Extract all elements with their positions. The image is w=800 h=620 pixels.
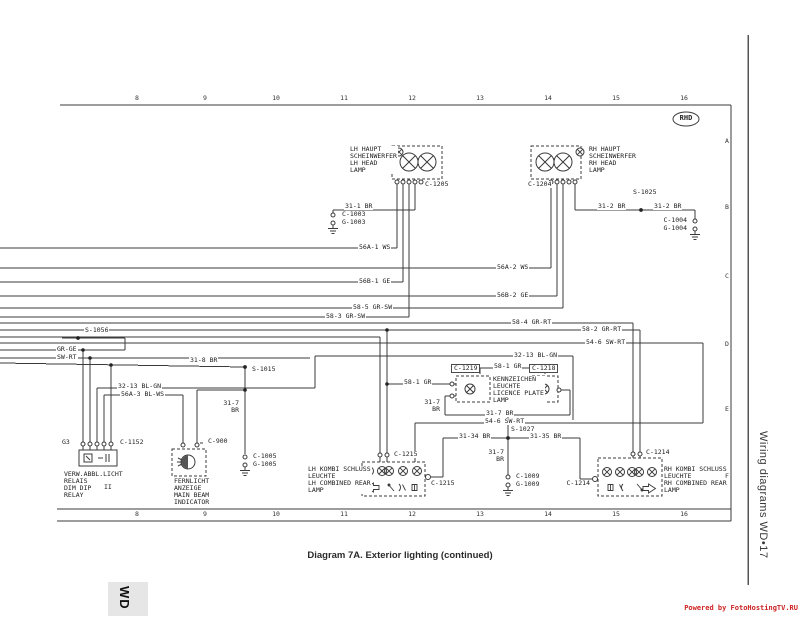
watermark: Powered by FotoHostingTV.RU <box>684 604 798 612</box>
wire-31-7-br-a: 31-7 BR <box>222 400 240 414</box>
licence-lamp-left-outline <box>456 376 490 402</box>
rear-lamp-icons <box>367 483 656 493</box>
relay-symbol: II <box>103 484 113 491</box>
ruler-top-8: 8 <box>134 95 140 102</box>
connector-c1205: C-1205 <box>424 181 449 188</box>
rh-turn-arrow-icon <box>643 484 656 493</box>
ruler-top-13: 13 <box>475 95 485 102</box>
ruler-letter-D: D <box>724 341 730 348</box>
ruler-bottom-11: 11 <box>339 511 349 518</box>
wire-gr-ge: GR-GE <box>56 346 78 353</box>
main-beam-indicator-symbol <box>177 455 195 469</box>
rh-reverse-icon <box>608 485 613 491</box>
wire-54-6-sw-rt-a: 54-6 SW-RT <box>585 339 626 346</box>
sidebar-title: Wiring diagrams WD•17 <box>757 431 769 558</box>
ground-g1005: G-1005 <box>252 461 277 468</box>
wire-58-2-gr-rt: 58-2 GR-RT <box>581 326 622 333</box>
wire-58-5-gr-sw: 58-5 GR-SW <box>352 304 393 311</box>
wire-31-7-br-b: 31-7 BR <box>423 399 441 413</box>
relay-label: VERW.ABBL.LICHT RELAIS DIM DIP RELAY <box>63 471 124 499</box>
rh-headlamp-label: RH HAUPT SCHEINWERFER RH HEAD LAMP <box>588 146 637 174</box>
ruler-top-16: 16 <box>679 95 689 102</box>
rh-tail-icon <box>620 484 624 491</box>
ruler-bottom-8: 8 <box>134 511 140 518</box>
lh-rear-lamp-label: LH KOMBI SCHLUSS LEUCHTE LH COMBINED REA… <box>307 466 372 494</box>
connector-pins <box>81 180 697 487</box>
connector-c1215-side: C-1215 <box>430 480 455 487</box>
page-border <box>57 35 748 585</box>
ruler-letter-C: C <box>724 273 730 280</box>
ruler-top-14: 14 <box>543 95 553 102</box>
wire-32-13-bl-gn-a: 32-13 BL-GN <box>513 352 558 359</box>
connector-c1219: C-1219 <box>451 364 480 373</box>
wire-58-1-gr-b: 58-1 GR <box>493 363 522 370</box>
splice-s1056: S-1056 <box>84 327 109 334</box>
ruler-top-10: 10 <box>271 95 281 102</box>
splice-s1025: S-1025 <box>632 189 657 196</box>
dim-dip-relay-box <box>79 450 117 466</box>
wire-31-8-br: 31-8 BR <box>189 357 218 364</box>
wiring-diagram-page: LH HAUPT SCHEINWERFER LH HEAD LAMPC-1205… <box>0 0 800 620</box>
connector-c1152: C-1152 <box>119 439 144 446</box>
wire-31-34-br: 31-34 BR <box>458 433 491 440</box>
ruler-letter-A: A <box>724 138 730 145</box>
connector-c1004: C-1004 <box>663 217 688 224</box>
wire-sw-rt: SW-RT <box>56 354 78 361</box>
splice-s1015: S-1015 <box>251 366 276 373</box>
ground-g1004: G-1004 <box>663 225 688 232</box>
ruler-letter-E: E <box>724 406 730 413</box>
ruler-bottom-14: 14 <box>543 511 553 518</box>
lh-tail-icon <box>399 484 406 491</box>
ground-g1003: G-1003 <box>341 219 366 226</box>
wire-31-7-br-d: 31-7 BR <box>487 449 505 463</box>
licence-plate-lamp-label: KENNZEICHEN LEUCHTE LICENCE PLATE LAMP <box>492 376 545 404</box>
lh-reverse-icon <box>412 485 417 491</box>
wire-31-35-br: 31-35 BR <box>529 433 562 440</box>
ruler-letter-F: F <box>724 473 730 480</box>
wire-54-6-sw-rt-b: 54-6 SW-RT <box>484 418 525 425</box>
wiring-diagram-canvas <box>0 0 800 620</box>
ruler-top-15: 15 <box>611 95 621 102</box>
ruler-top-11: 11 <box>339 95 349 102</box>
wire-58-4-gr-rt: 58-4 GR-RT <box>511 319 552 326</box>
connector-c900: C-900 <box>207 438 229 445</box>
ruler-letter-B: B <box>724 204 730 211</box>
connector-c1214-top: C-1214 <box>645 449 670 456</box>
ruler-bottom-15: 15 <box>611 511 621 518</box>
wire-56a-3-bl-ws: 56A-3 BL-WS <box>120 391 165 398</box>
wire-32-13-bl-gn-b: 32-13 BL-GN <box>117 383 162 390</box>
corner-tab: WD <box>108 582 148 616</box>
ruler-bottom-12: 12 <box>407 511 417 518</box>
wire-31-2-br-a: 31-2 BR <box>597 203 626 210</box>
ruler-bottom-10: 10 <box>271 511 281 518</box>
main-beam-indicator-label: FERNLICHT ANZEIGE MAIN BEAM INDICATOR <box>173 478 210 506</box>
wire-31-1-br: 31-1 BR <box>344 203 373 210</box>
wire-58-3-gr-sw: 58-3 GR-SW <box>325 313 366 320</box>
connector-c1218: C-1218 <box>529 364 558 373</box>
corner-tab-label: WD <box>117 586 132 610</box>
rh-rear-lamp-label: RH KOMBI SCHLUSS LEUCHTE RH COMBINED REA… <box>663 466 728 494</box>
rhd-badge-text: RHD <box>679 115 694 122</box>
wire-56a-2-ws: 56A-2 WS <box>496 264 529 271</box>
connector-c1214-side: C-1214 <box>566 480 591 487</box>
wire-56a-1-ws: 56A-1 WS <box>358 244 391 251</box>
ruler-bottom-13: 13 <box>475 511 485 518</box>
wire-56b-2-ge: 56B-2 GE <box>496 292 529 299</box>
connector-c1204: C-1204 <box>527 181 552 188</box>
ruler-top-12: 12 <box>407 95 417 102</box>
ruler-bottom-9: 9 <box>202 511 208 518</box>
wire-31-2-br-b: 31-2 BR <box>653 203 682 210</box>
pin-group-g3: G3 <box>61 439 71 446</box>
connector-c1005: C-1005 <box>252 453 277 460</box>
ground-g1009: G-1009 <box>515 481 540 488</box>
ruler-bottom-16: 16 <box>679 511 689 518</box>
wire-56b-1-ge: 56B-1 GE <box>358 278 391 285</box>
wire-58-1-gr-a: 58-1 GR <box>403 379 432 386</box>
connector-c1215-top: C-1215 <box>393 451 418 458</box>
connector-c1009: C-1009 <box>515 473 540 480</box>
wire-31-7-br-c: 31-7 BR <box>485 410 514 417</box>
diagram-caption: Diagram 7A. Exterior lighting (continued… <box>307 550 492 561</box>
lh-headlamp-label: LH HAUPT SCHEINWERFER LH HEAD LAMP <box>349 146 398 174</box>
ruler-top-9: 9 <box>202 95 208 102</box>
rh-headlamp-outline <box>531 146 581 179</box>
connector-c1003: C-1003 <box>341 211 366 218</box>
